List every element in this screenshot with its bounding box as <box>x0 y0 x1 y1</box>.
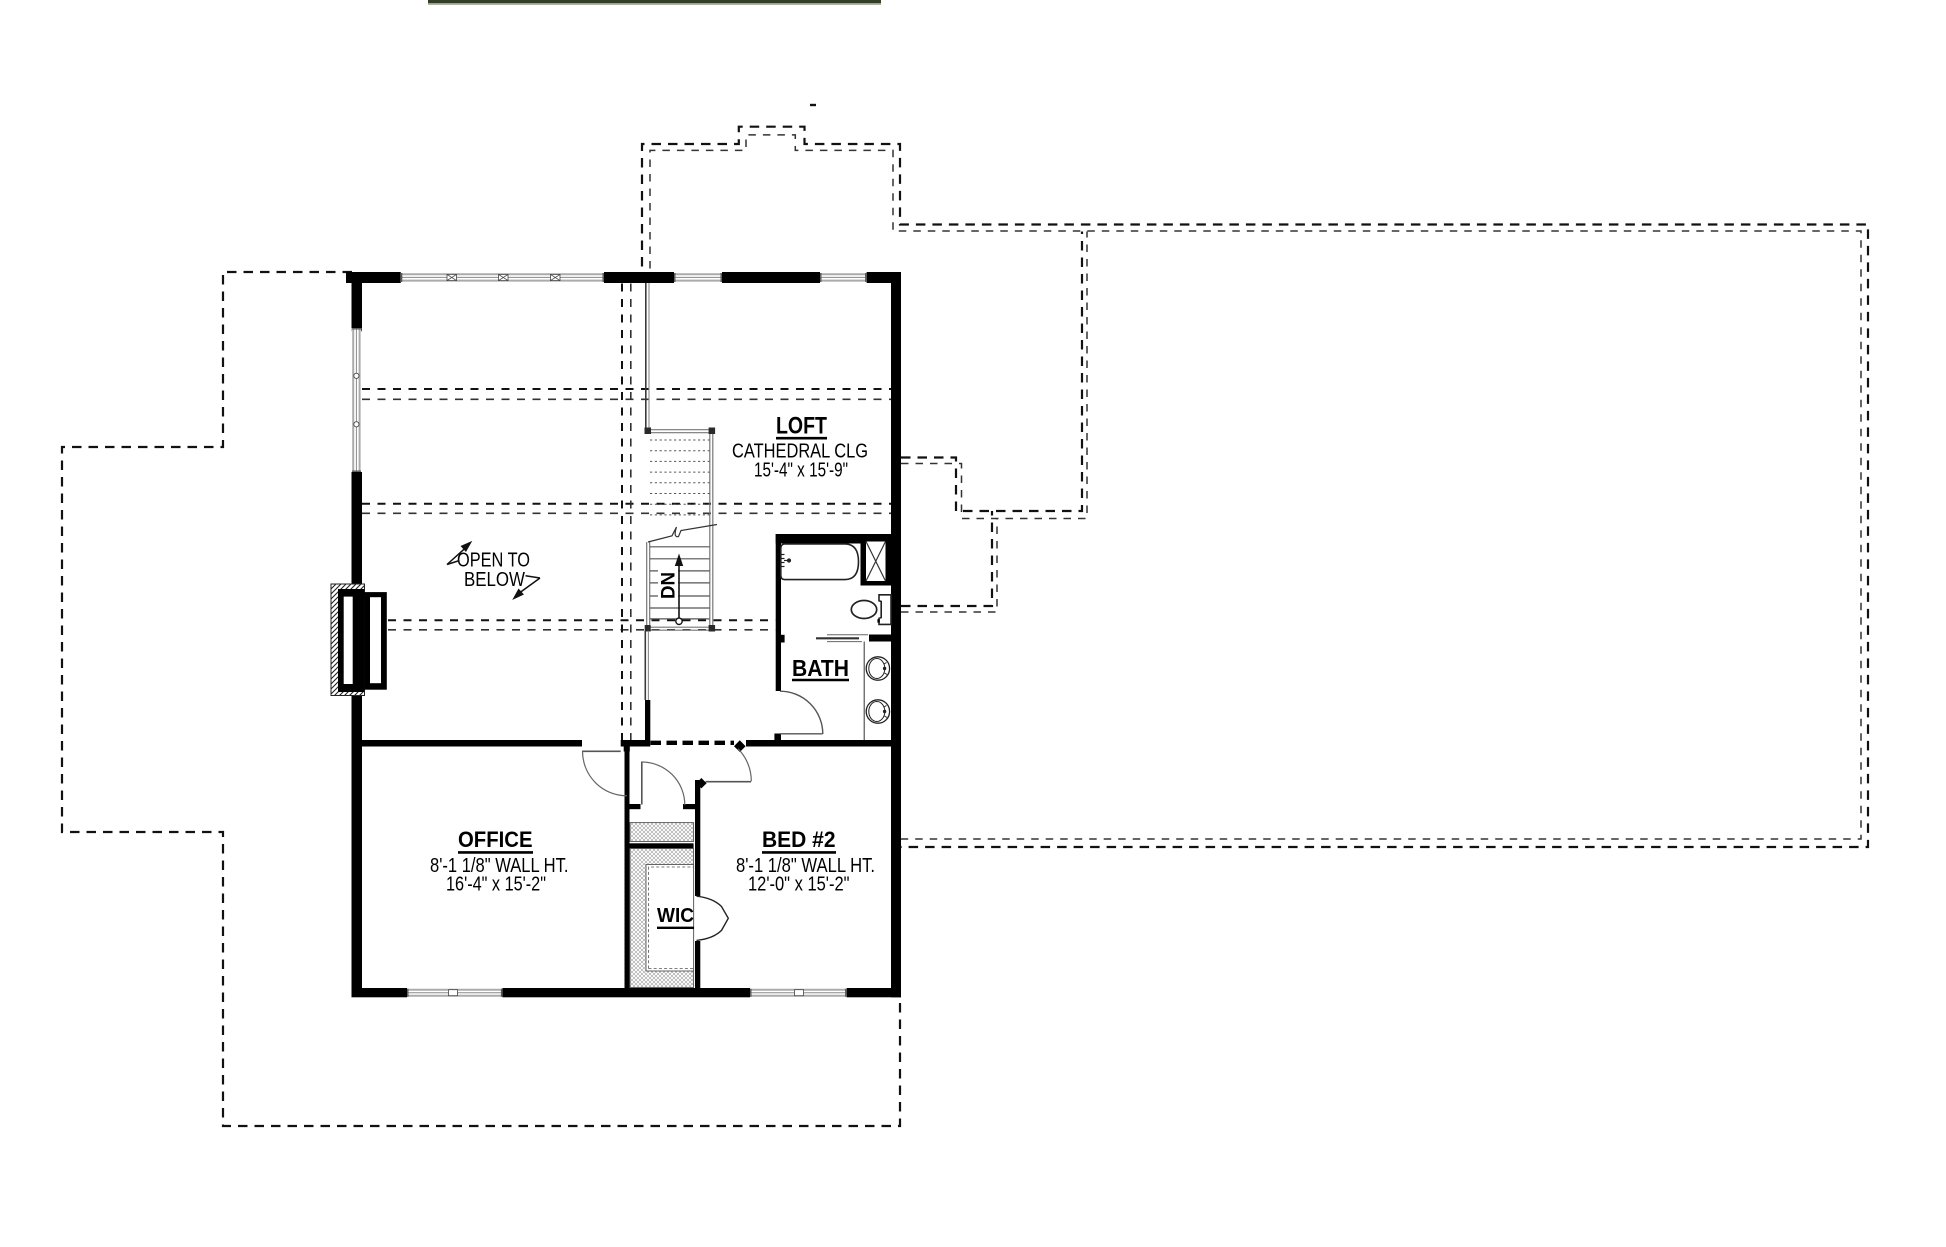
svg-text:16'-4" x 15'-2": 16'-4" x 15'-2" <box>446 874 546 896</box>
svg-text:LOFT: LOFT <box>776 413 827 440</box>
svg-text:DN: DN <box>659 572 680 599</box>
svg-text:15'-4" x 15'-9": 15'-4" x 15'-9" <box>754 460 848 482</box>
svg-text:OFFICE: OFFICE <box>458 827 533 852</box>
svg-text:BED #2: BED #2 <box>762 827 836 852</box>
svg-text:WIC: WIC <box>657 905 694 927</box>
svg-text:BELOW: BELOW <box>464 569 525 591</box>
svg-text:BATH: BATH <box>792 655 849 681</box>
svg-text:12'-0" x 15'-2": 12'-0" x 15'-2" <box>748 874 850 896</box>
